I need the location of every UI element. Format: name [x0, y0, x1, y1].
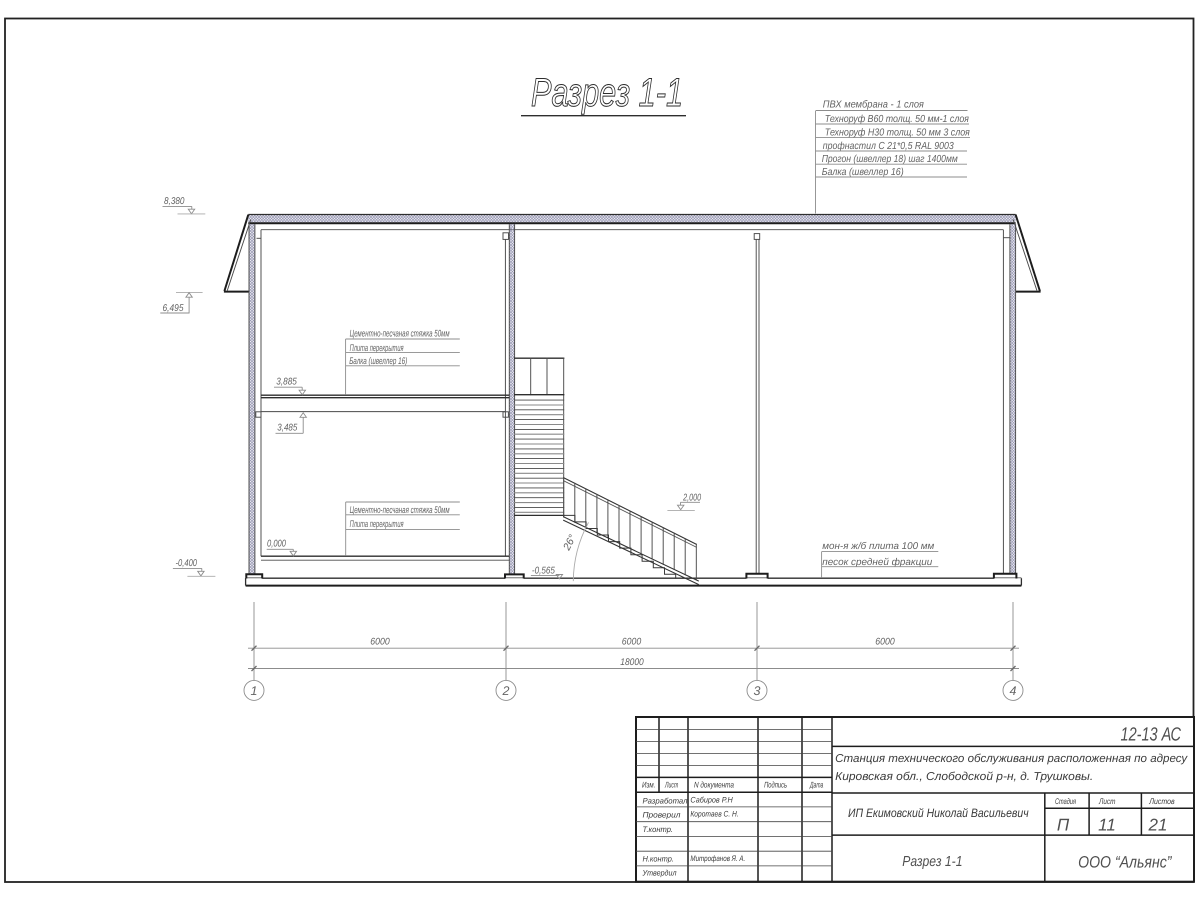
- svg-text:Техноруф В60 толщ. 50 мм-1 сло: Техноруф В60 толщ. 50 мм-1 слоя: [825, 114, 969, 125]
- svg-text:мон-я ж/б плита 100 мм: мон-я ж/б плита 100 мм: [822, 541, 934, 552]
- svg-text:18000: 18000: [620, 657, 644, 668]
- svg-text:Утвердил: Утвердил: [642, 869, 677, 878]
- svg-text:Кировская обл., Слободской р-н: Кировская обл., Слободской р-н, д. Трушк…: [835, 771, 1093, 783]
- svg-text:6000: 6000: [622, 636, 642, 647]
- svg-text:2: 2: [502, 684, 510, 698]
- svg-text:Дата: Дата: [809, 781, 823, 790]
- svg-text:Листов: Листов: [1148, 797, 1175, 806]
- svg-text:Стадия: Стадия: [1055, 797, 1076, 806]
- svg-text:N документа: N документа: [694, 781, 734, 790]
- svg-text:3,485: 3,485: [277, 423, 297, 434]
- svg-text:Т.контр.: Т.контр.: [643, 825, 674, 834]
- svg-text:0,000: 0,000: [267, 539, 286, 550]
- svg-text:Балка (швеллер 16): Балка (швеллер 16): [822, 167, 904, 178]
- svg-text:Техноруф Н30 толщ. 50 мм 3 сло: Техноруф Н30 толщ. 50 мм 3 слоя: [825, 127, 970, 138]
- svg-text:3: 3: [754, 684, 761, 698]
- svg-text:1: 1: [251, 684, 258, 698]
- svg-text:профнастил С 21*0,5 RAL 9003: профнастил С 21*0,5 RAL 9003: [823, 141, 954, 152]
- svg-text:Сабиров Р.Н: Сабиров Р.Н: [690, 796, 732, 805]
- svg-text:11: 11: [1098, 815, 1116, 834]
- svg-text:Разработал: Разработал: [643, 796, 688, 805]
- svg-text:Коротаев С. Н.: Коротаев С. Н.: [690, 810, 738, 819]
- svg-text:6000: 6000: [875, 636, 895, 647]
- svg-text:ООО “Альянс”: ООО “Альянс”: [1078, 853, 1173, 871]
- svg-text:12-13 АС: 12-13 АС: [1121, 725, 1182, 746]
- svg-text:Н.контр.: Н.контр.: [643, 854, 674, 863]
- svg-text:6000: 6000: [370, 636, 390, 647]
- svg-text:Разрез 1-1: Разрез 1-1: [902, 854, 962, 870]
- svg-text:21: 21: [1148, 815, 1168, 834]
- svg-text:П: П: [1057, 815, 1070, 834]
- svg-text:Проверил: Проверил: [643, 811, 681, 820]
- svg-text:Цементно-песчаная стяжка 50мм: Цементно-песчаная стяжка 50мм: [350, 328, 450, 339]
- svg-text:8,380: 8,380: [164, 196, 185, 207]
- svg-text:Митрофанов Я. А.: Митрофанов Я. А.: [690, 854, 745, 863]
- svg-text:-0,400: -0,400: [176, 558, 198, 569]
- svg-text:3,885: 3,885: [276, 376, 297, 387]
- svg-text:Станция технического обслужива: Станция технического обслуживания распол…: [835, 753, 1188, 765]
- svg-text:ИП Екимовский Николай Васильев: ИП Екимовский Николай Васильевич: [848, 806, 1029, 820]
- svg-text:Разрез 1-1: Разрез 1-1: [531, 71, 683, 115]
- svg-text:Прогон (швеллер 18) шаг 1400мм: Прогон (швеллер 18) шаг 1400мм: [822, 154, 958, 165]
- svg-text:Изм.: Изм.: [642, 781, 655, 790]
- svg-text:6,495: 6,495: [163, 303, 184, 314]
- svg-text:Плита перекрытия: Плита перекрытия: [350, 519, 404, 530]
- svg-text:4: 4: [1010, 684, 1017, 698]
- svg-text:Подпись: Подпись: [764, 781, 787, 790]
- svg-text:Лист: Лист: [664, 781, 678, 790]
- svg-text:ПВХ мембрана - 1 слоя: ПВХ мембрана - 1 слоя: [823, 100, 925, 111]
- svg-text:-0,565: -0,565: [532, 565, 555, 576]
- svg-text:Лист: Лист: [1098, 797, 1115, 806]
